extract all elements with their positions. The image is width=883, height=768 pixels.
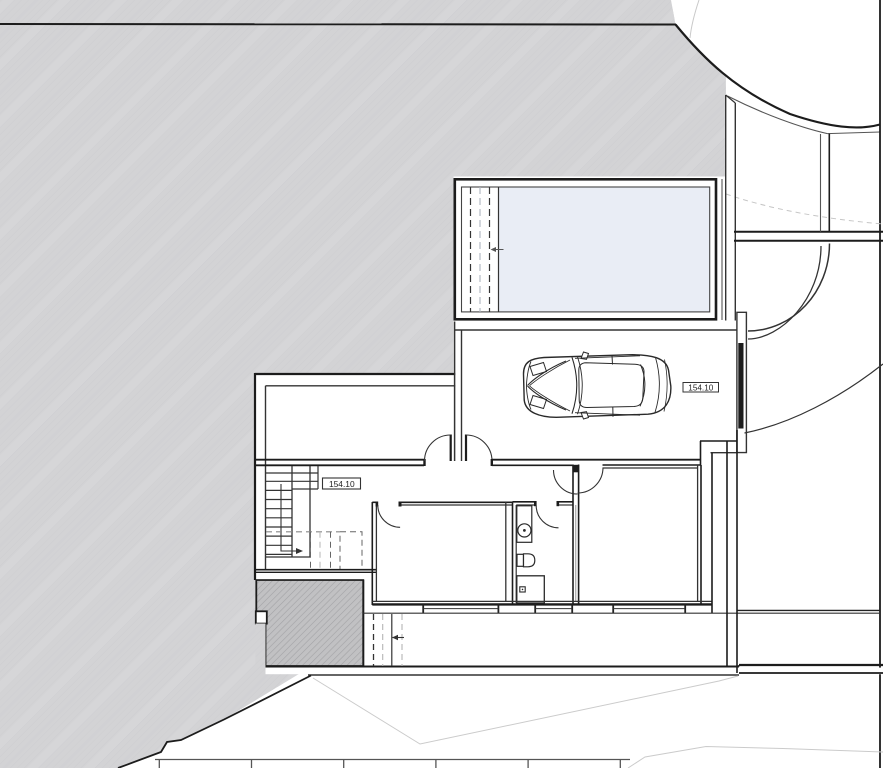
svg-text:154.10: 154.10 <box>329 479 355 489</box>
svg-text:154.10: 154.10 <box>688 383 713 392</box>
